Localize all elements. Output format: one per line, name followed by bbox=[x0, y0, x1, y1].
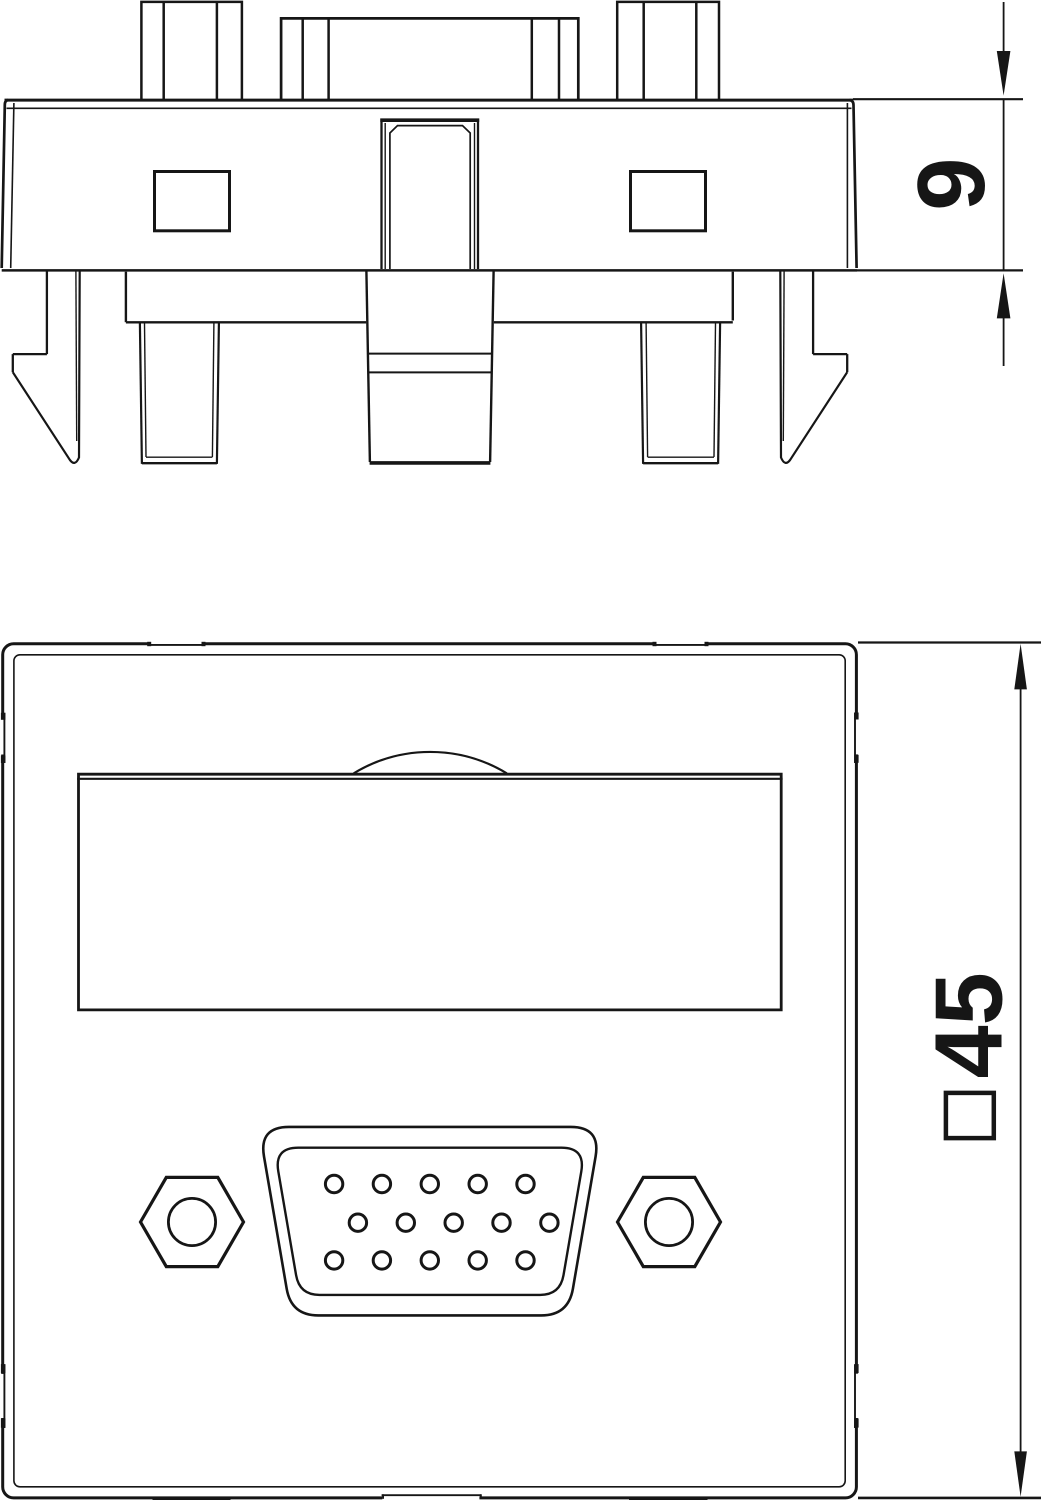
svg-text:45: 45 bbox=[917, 972, 1023, 1078]
svg-text:9: 9 bbox=[899, 158, 1005, 211]
